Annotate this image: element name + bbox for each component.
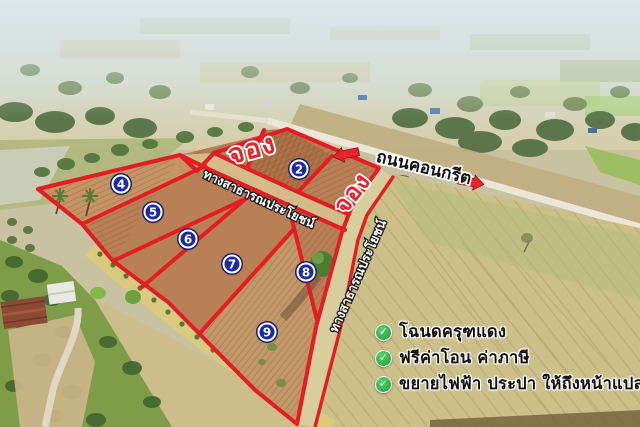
plot-badge-6: 6 — [179, 230, 198, 249]
check-icon: ✓ — [375, 350, 392, 367]
plot-badge-7: 7 — [223, 255, 242, 274]
plot-badge-8: 8 — [297, 263, 316, 282]
feature-text: โฉนดครุฑแดง — [399, 319, 506, 345]
features-list: ✓ โฉนดครุฑแดง ✓ ฟรีค่าโอน ค่าภาษี ✓ ขยาย… — [375, 322, 637, 400]
feature-item: ✓ โฉนดครุฑแดง — [375, 322, 637, 342]
plot-badge-5: 5 — [144, 203, 163, 222]
white-shed-roof — [47, 281, 77, 305]
check-icon: ✓ — [375, 376, 392, 393]
check-icon: ✓ — [375, 324, 392, 341]
plot-badge-4: 4 — [112, 175, 131, 194]
feature-item: ✓ ฟรีค่าโอน ค่าภาษี — [375, 348, 637, 368]
feature-text: ขยายไฟฟ้า ประปา ให้ถึงหน้าแปลง — [399, 371, 640, 397]
plot-badge-9: 9 — [258, 323, 277, 342]
feature-item: ✓ ขยายไฟฟ้า ประปา ให้ถึงหน้าแปลง — [375, 374, 637, 394]
plot-badge-2: 2 — [290, 160, 309, 179]
aerial-land-listing-photo: จอง จอง ถนนคอนกรีต ทางสาธารณประโยชน์ ทาง… — [0, 0, 640, 427]
feature-text: ฟรีค่าโอน ค่าภาษี — [399, 345, 530, 371]
